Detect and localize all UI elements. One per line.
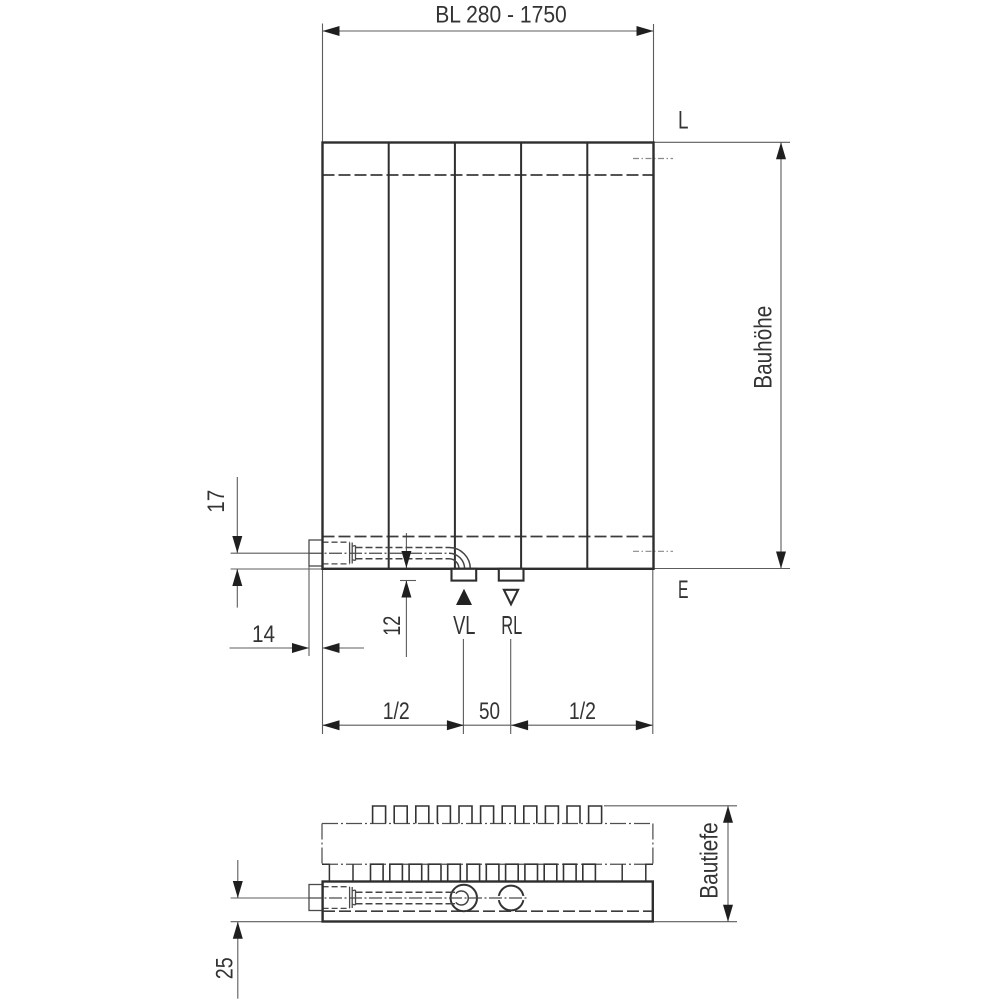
svg-text:12: 12 [379, 616, 406, 636]
svg-text:1/2: 1/2 [383, 698, 410, 725]
svg-text:Bauhöhe: Bauhöhe [749, 306, 777, 389]
svg-text:E: E [678, 576, 689, 604]
svg-text:14: 14 [252, 621, 275, 648]
svg-text:L: L [678, 107, 689, 135]
svg-text:50: 50 [479, 698, 500, 725]
svg-text:RL: RL [501, 610, 522, 640]
svg-text:25: 25 [212, 957, 239, 979]
svg-text:VL: VL [453, 610, 475, 640]
svg-text:1/2: 1/2 [569, 698, 596, 725]
svg-text:Bautiefe: Bautiefe [695, 822, 723, 899]
svg-text:17: 17 [203, 490, 230, 513]
svg-text:BL 280 - 1750: BL 280 - 1750 [435, 2, 567, 29]
